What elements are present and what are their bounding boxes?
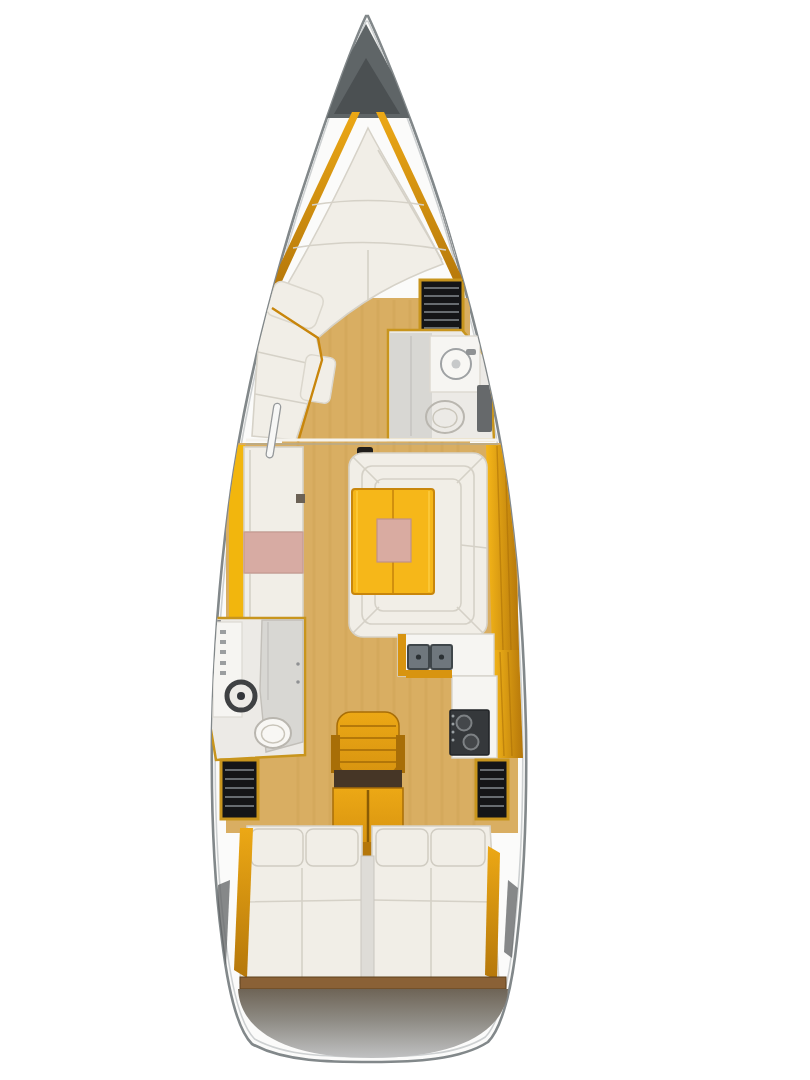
berth-foot-trim [240,977,506,989]
companionway-threshold [334,770,402,789]
sofa-back-cushion [300,354,337,404]
step-side-rail-right [396,735,405,773]
cabin-divider [361,856,374,984]
head-sink-drain [237,692,245,700]
burner-1 [457,716,472,731]
sink-drain [452,360,461,369]
companionway-steps [337,712,399,774]
counter-end-trim [398,634,406,676]
faucet [466,349,476,355]
floor-fitting [296,494,305,503]
stbd-berth-pillow-2 [431,829,485,866]
wardrobe-shelves [420,280,463,334]
folding-table [352,489,434,594]
boat-floor-plan [0,0,810,1080]
forward-head [388,330,494,440]
port-hanging-locker [221,760,258,819]
pink-cushion [244,532,303,573]
port-berth-pillow-1 [251,829,303,866]
port-aft-head [206,618,305,760]
counter-under-trim [406,670,452,678]
head-door [477,385,492,432]
port-berth-pillow-2 [306,829,358,866]
door-hinge-1 [296,662,300,666]
burner-2 [464,735,479,750]
screenshot-canvas [0,0,810,1080]
stbd-berth-pillow-1 [376,829,428,866]
table-insert [377,519,411,562]
step-side-rail-left [331,735,340,773]
sink-right-drain [439,654,444,659]
stove [450,710,489,755]
starboard-hanging-locker [476,760,508,819]
door-hinge-2 [296,680,300,684]
sink-left-drain [416,654,421,659]
